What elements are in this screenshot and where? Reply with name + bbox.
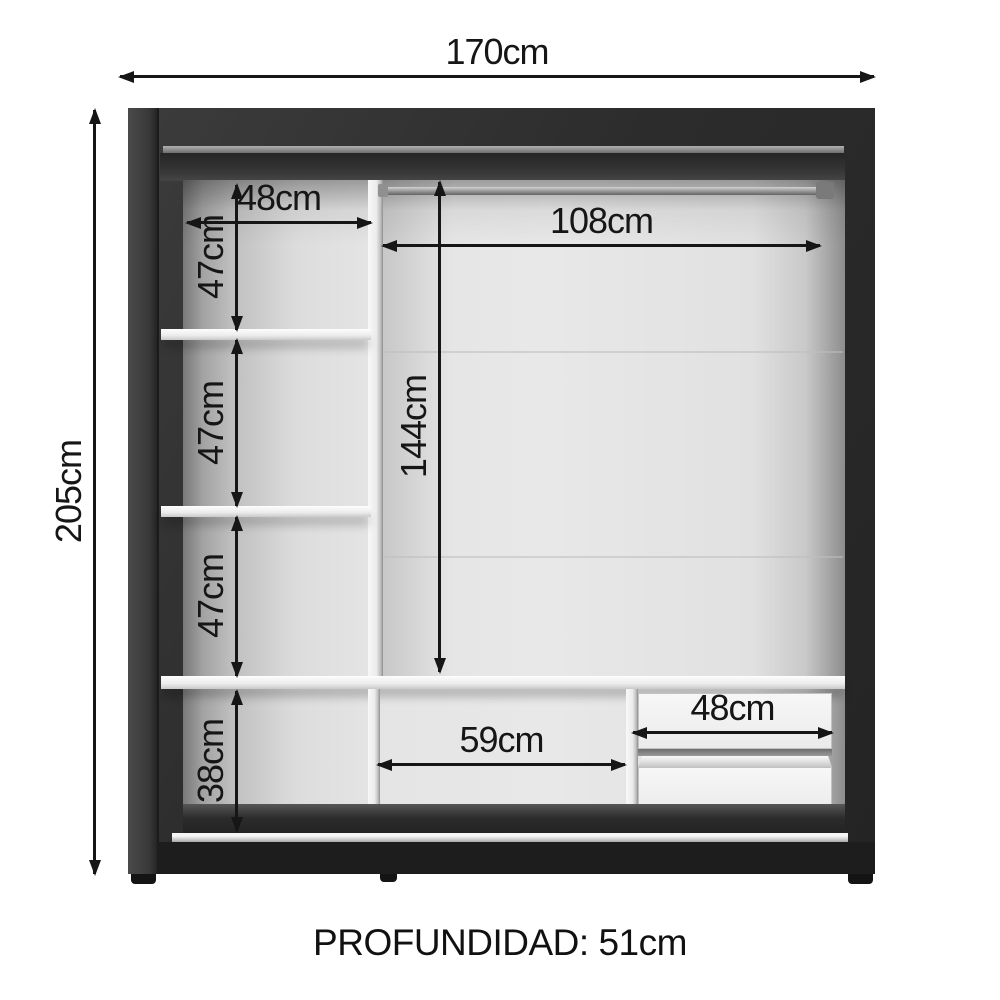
arrowhead xyxy=(231,492,243,508)
dim-bottom-middle-width: 59cm xyxy=(378,763,625,766)
arrowhead xyxy=(89,860,101,876)
hanging-rod xyxy=(381,187,830,195)
rod-bracket-left xyxy=(378,184,388,197)
dim-bottom-section-height-label: 38cm xyxy=(193,691,229,831)
back-panel-seam xyxy=(383,351,843,353)
interior-floor xyxy=(183,804,845,835)
dim-rod-section-width: 108cm xyxy=(383,244,820,247)
arrowhead xyxy=(357,217,373,229)
arrowhead xyxy=(231,515,243,531)
sliding-door-top-track xyxy=(163,146,844,153)
arrowhead xyxy=(611,759,627,771)
arrowhead xyxy=(434,658,446,674)
arrowhead xyxy=(89,108,101,124)
arrowhead xyxy=(376,759,392,771)
dim-total-width: 170cm xyxy=(120,75,874,78)
foot-left xyxy=(131,874,156,884)
dim-shelf-gap-1-label: 47cm xyxy=(193,185,229,330)
arrowhead xyxy=(231,316,243,332)
arrowhead xyxy=(818,727,834,739)
dim-hanging-height: 144cm xyxy=(438,182,441,672)
vertical-divider-panel xyxy=(368,180,383,685)
back-panel-seam xyxy=(383,556,843,558)
dim-bottom-middle-width-label: 59cm xyxy=(459,722,543,758)
arrowhead xyxy=(231,662,243,678)
dim-hanging-height-label: 144cm xyxy=(396,182,432,672)
arrowhead xyxy=(434,180,446,196)
drawer-unit-side-panel xyxy=(626,689,638,811)
dim-total-height: 205cm xyxy=(93,110,96,874)
sliding-door-bottom-track xyxy=(172,833,848,842)
rod-bracket-right xyxy=(816,182,834,199)
foot-middle xyxy=(380,874,397,882)
foot-right xyxy=(848,874,873,884)
dim-shelf-gap-1: 47cm xyxy=(235,185,238,330)
dim-total-height-label: 205cm xyxy=(51,110,87,874)
arrowhead xyxy=(631,727,647,739)
arrowhead xyxy=(231,689,243,705)
left-shelf-upper xyxy=(161,329,371,340)
dim-drawer-width-label: 48cm xyxy=(690,690,774,726)
base-plinth xyxy=(157,842,875,874)
arrowhead xyxy=(118,71,134,83)
dim-shelf-gap-3-label: 47cm xyxy=(193,517,229,676)
drawer-bottom-open-top xyxy=(638,756,832,767)
arrowhead xyxy=(806,240,822,252)
bottom-divider-panel xyxy=(368,689,380,810)
dim-total-width-label: 170cm xyxy=(445,34,548,70)
dim-drawer-width: 48cm xyxy=(633,731,832,734)
dim-bottom-section-height: 38cm xyxy=(235,691,238,831)
drawer-gap-shadow xyxy=(638,749,832,756)
arrowhead xyxy=(381,240,397,252)
arrowhead xyxy=(231,183,243,199)
left-shelf-middle xyxy=(161,506,371,517)
wardrobe-dimension-diagram: 170cm 205cm 48cm 47cm 47cm 47cm xyxy=(0,0,1000,1000)
dim-rod-section-width-label: 108cm xyxy=(550,203,653,239)
arrowhead xyxy=(231,338,243,354)
dim-upper-shelf-width-label: 48cm xyxy=(237,180,321,216)
dim-shelf-gap-3: 47cm xyxy=(235,517,238,676)
arrowhead xyxy=(860,71,876,83)
arrowhead xyxy=(231,817,243,833)
dim-shelf-gap-2-label: 47cm xyxy=(193,340,229,506)
frame-left-side-panel xyxy=(128,108,159,874)
dim-shelf-gap-2: 47cm xyxy=(235,340,238,506)
depth-label: PROFUNDIDAD: 51cm xyxy=(0,922,1000,964)
